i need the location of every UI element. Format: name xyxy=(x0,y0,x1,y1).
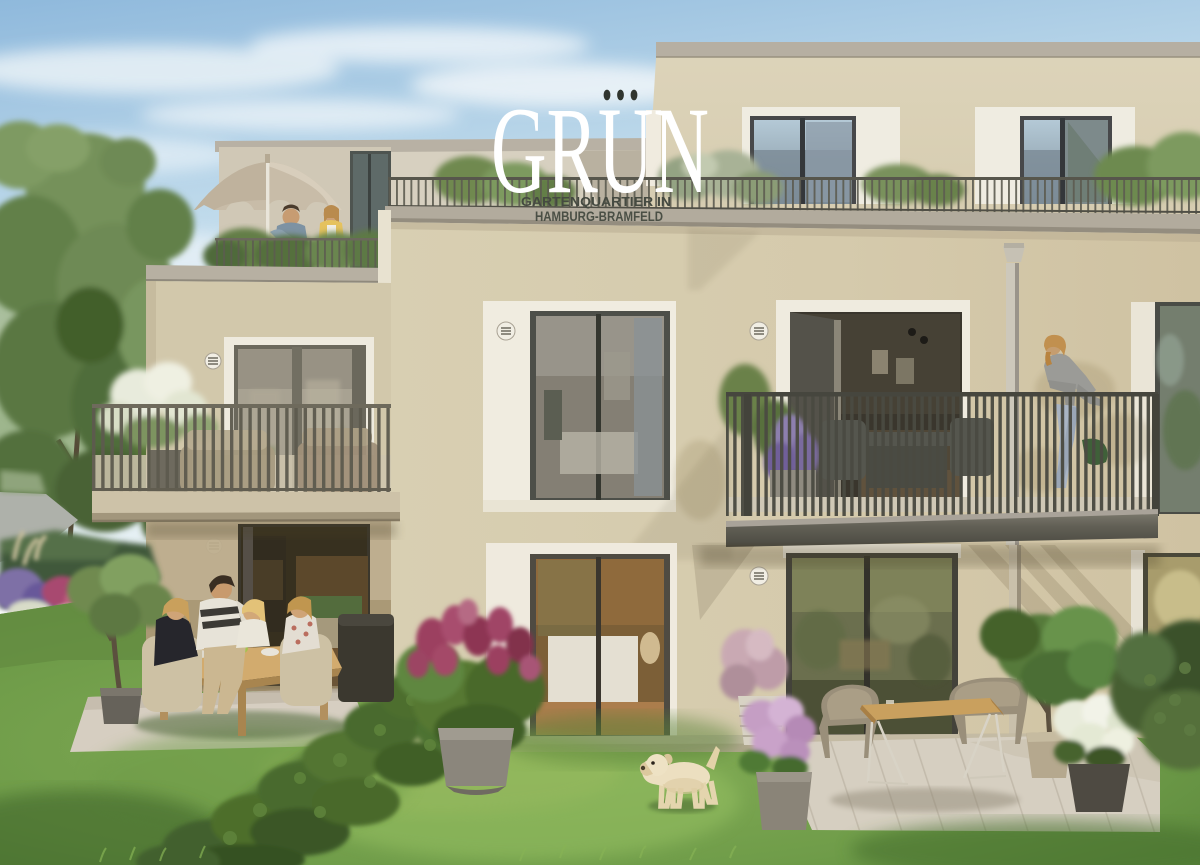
svg-text:GARTENQUARTIER IN: GARTENQUARTIER IN xyxy=(521,194,671,209)
svg-text:HAMBURG-BRAMFELD: HAMBURG-BRAMFELD xyxy=(535,208,663,224)
